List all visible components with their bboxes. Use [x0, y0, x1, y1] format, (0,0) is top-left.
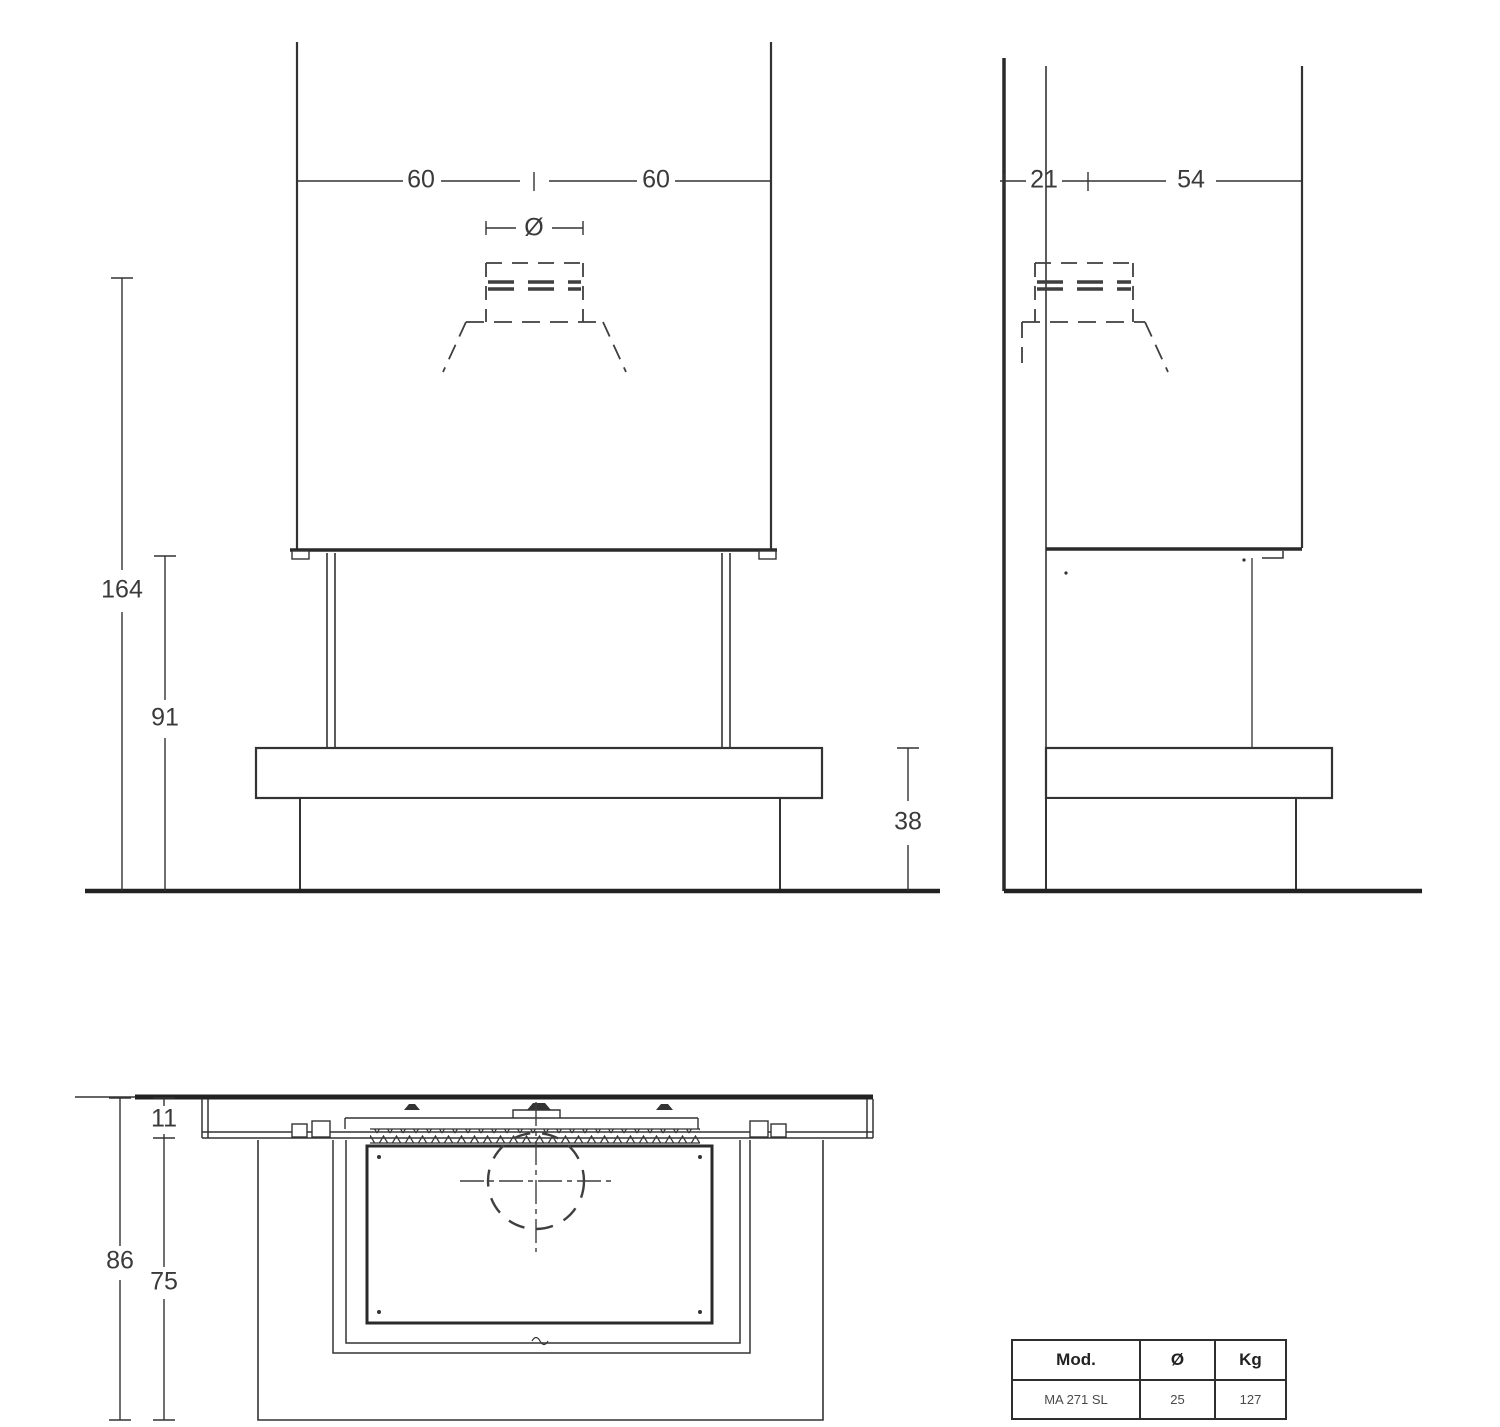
- front-flue-dashed: [443, 263, 626, 372]
- front-width-dimension: [297, 172, 771, 191]
- technical-drawing-canvas: 60 60 Ø 164 91 38: [0, 0, 1500, 1427]
- dim-width-right: 60: [642, 166, 670, 194]
- plan-firebox: [367, 1146, 712, 1323]
- dim-top-thickness: 11: [151, 1105, 177, 1133]
- spec-table-value-row: MA 271 SL 25 127: [1012, 1380, 1286, 1419]
- spec-header-diameter: Ø: [1140, 1340, 1215, 1380]
- dim-inner-depth: 75: [150, 1268, 178, 1296]
- spec-header-kg: Kg: [1215, 1340, 1286, 1380]
- side-view: 21 54: [1000, 58, 1422, 891]
- spec-table: Mod. Ø Kg MA 271 SL 25 127: [1011, 1339, 1287, 1420]
- plan-inner-dimension-line: [153, 1098, 175, 1420]
- front-view: 60 60 Ø 164 91 38: [85, 42, 940, 891]
- spec-table-header-row: Mod. Ø Kg: [1012, 1340, 1286, 1380]
- side-flue-dashed: [1022, 263, 1168, 372]
- dim-flue-diameter: Ø: [524, 214, 543, 242]
- side-base: [1046, 798, 1296, 891]
- plan-view: 11 75 86: [75, 1097, 873, 1420]
- dim-flue-offset: 21: [1030, 166, 1058, 194]
- dim-width-left: 60: [407, 166, 435, 194]
- dim-total-height: 164: [101, 576, 143, 604]
- front-hood-outline: [290, 42, 777, 559]
- side-bench: [1046, 748, 1332, 798]
- drawing-svg: 60 60 Ø 164 91 38: [0, 0, 1500, 1427]
- dim-total-depth: 86: [106, 1247, 134, 1275]
- front-opening-columns: [327, 553, 730, 748]
- front-base: [300, 798, 780, 891]
- dim-bench-height: 38: [894, 808, 922, 836]
- spec-value-model: MA 271 SL: [1012, 1380, 1140, 1419]
- dim-opening-height: 91: [151, 704, 179, 732]
- dim-depth: 54: [1177, 166, 1205, 194]
- spec-value-diameter: 25: [1140, 1380, 1215, 1419]
- spec-value-kg: 127: [1215, 1380, 1286, 1419]
- spec-header-mod: Mod.: [1012, 1340, 1140, 1380]
- front-bench: [256, 748, 822, 798]
